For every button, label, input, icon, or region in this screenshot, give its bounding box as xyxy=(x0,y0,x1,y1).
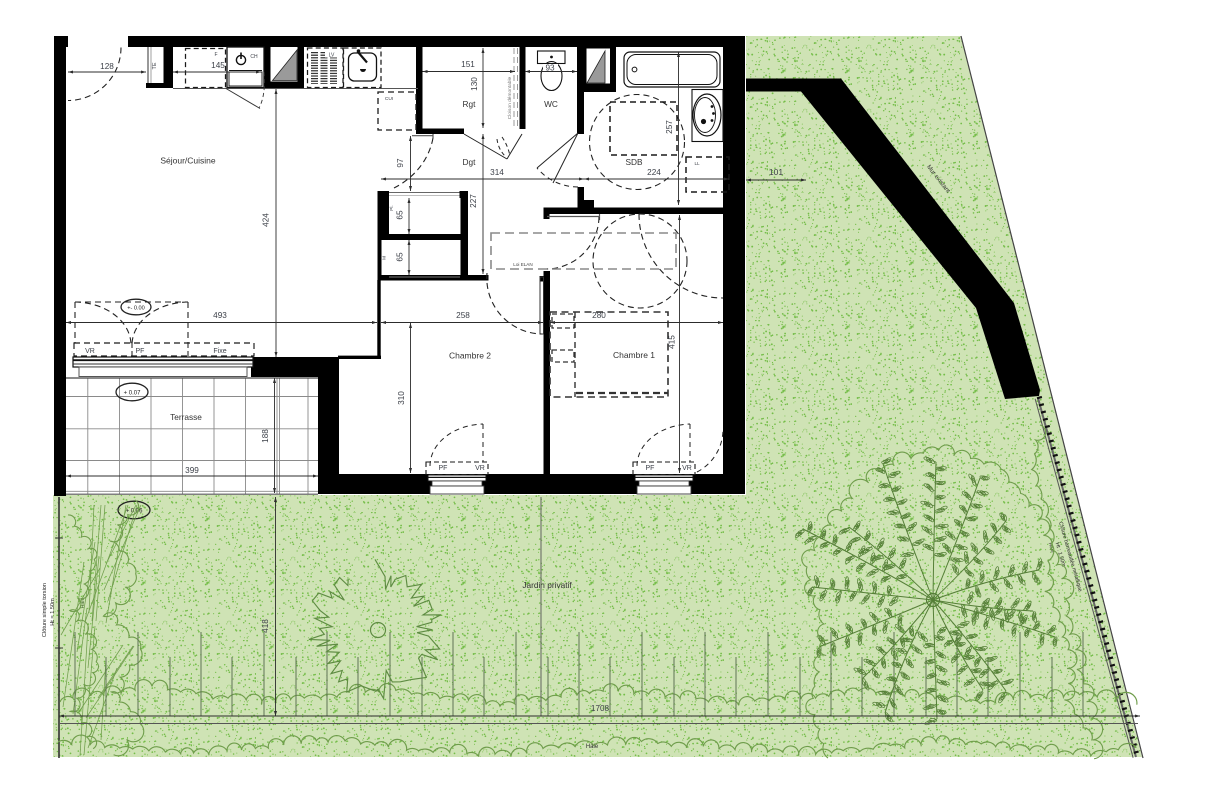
svg-text:280: 280 xyxy=(592,311,606,320)
svg-text:Chambre 1: Chambre 1 xyxy=(613,350,655,360)
svg-text:VR: VR xyxy=(85,348,95,355)
svg-text:WC: WC xyxy=(544,99,558,109)
svg-text:F: F xyxy=(214,52,217,58)
svg-text:SDB: SDB xyxy=(625,157,643,167)
svg-text:399: 399 xyxy=(185,466,199,475)
svg-text:PF: PF xyxy=(439,465,448,472)
svg-text:Rgt: Rgt xyxy=(463,99,477,109)
svg-text:VR: VR xyxy=(475,465,485,472)
svg-text:424: 424 xyxy=(262,213,271,227)
svg-text:314: 314 xyxy=(490,168,504,177)
svg-text:Haie: Haie xyxy=(586,744,599,750)
svg-text:+- 0.00: +- 0.00 xyxy=(127,306,145,312)
svg-text:493: 493 xyxy=(213,311,227,320)
svg-text:224: 224 xyxy=(647,168,661,177)
svg-text:65: 65 xyxy=(396,210,405,220)
svg-text:CUI: CUI xyxy=(385,96,393,102)
svg-text:Cloison démontable: Cloison démontable xyxy=(507,76,513,119)
svg-text:128: 128 xyxy=(100,62,114,71)
svg-text:Clôture simple torsion: Clôture simple torsion xyxy=(42,583,48,637)
svg-text:LV: LV xyxy=(329,53,335,59)
svg-text:Ht = 1.50m: Ht = 1.50m xyxy=(50,598,56,626)
svg-text:Jardin privatif: Jardin privatif xyxy=(522,580,572,590)
svg-text:CH: CH xyxy=(250,54,258,60)
svg-text:258: 258 xyxy=(456,311,470,320)
svg-text:145: 145 xyxy=(211,61,225,70)
svg-text:310: 310 xyxy=(397,391,406,405)
svg-text:PF: PF xyxy=(136,348,145,355)
svg-text:415: 415 xyxy=(668,335,677,349)
svg-text:Chambre 2: Chambre 2 xyxy=(449,351,491,361)
svg-text:130: 130 xyxy=(470,77,479,91)
svg-text:LL: LL xyxy=(694,161,700,166)
svg-text:VR: VR xyxy=(682,465,692,472)
svg-text:Loi ELAN: Loi ELAN xyxy=(513,262,532,267)
svg-text:257: 257 xyxy=(665,120,674,134)
svg-text:Dgt: Dgt xyxy=(463,157,477,167)
svg-text:Pl.: Pl. xyxy=(389,205,394,210)
svg-text:188: 188 xyxy=(261,429,270,443)
svg-text:151: 151 xyxy=(461,60,475,69)
svg-text:101: 101 xyxy=(769,167,783,177)
svg-text:97: 97 xyxy=(396,158,405,168)
svg-text:418: 418 xyxy=(261,619,270,633)
svg-text:+ 0.07: + 0.07 xyxy=(124,391,142,397)
svg-text:PF: PF xyxy=(646,465,655,472)
svg-text:Terrasse: Terrasse xyxy=(170,412,202,422)
svg-text:M: M xyxy=(382,256,387,260)
svg-text:227: 227 xyxy=(469,194,478,208)
svg-text:1708: 1708 xyxy=(591,704,610,713)
svg-text:Fixe: Fixe xyxy=(213,348,226,355)
svg-text:TE: TE xyxy=(152,62,158,69)
svg-text:Séjour/Cuisine: Séjour/Cuisine xyxy=(160,156,216,166)
svg-text:93: 93 xyxy=(545,64,555,73)
svg-text:65: 65 xyxy=(396,252,405,262)
